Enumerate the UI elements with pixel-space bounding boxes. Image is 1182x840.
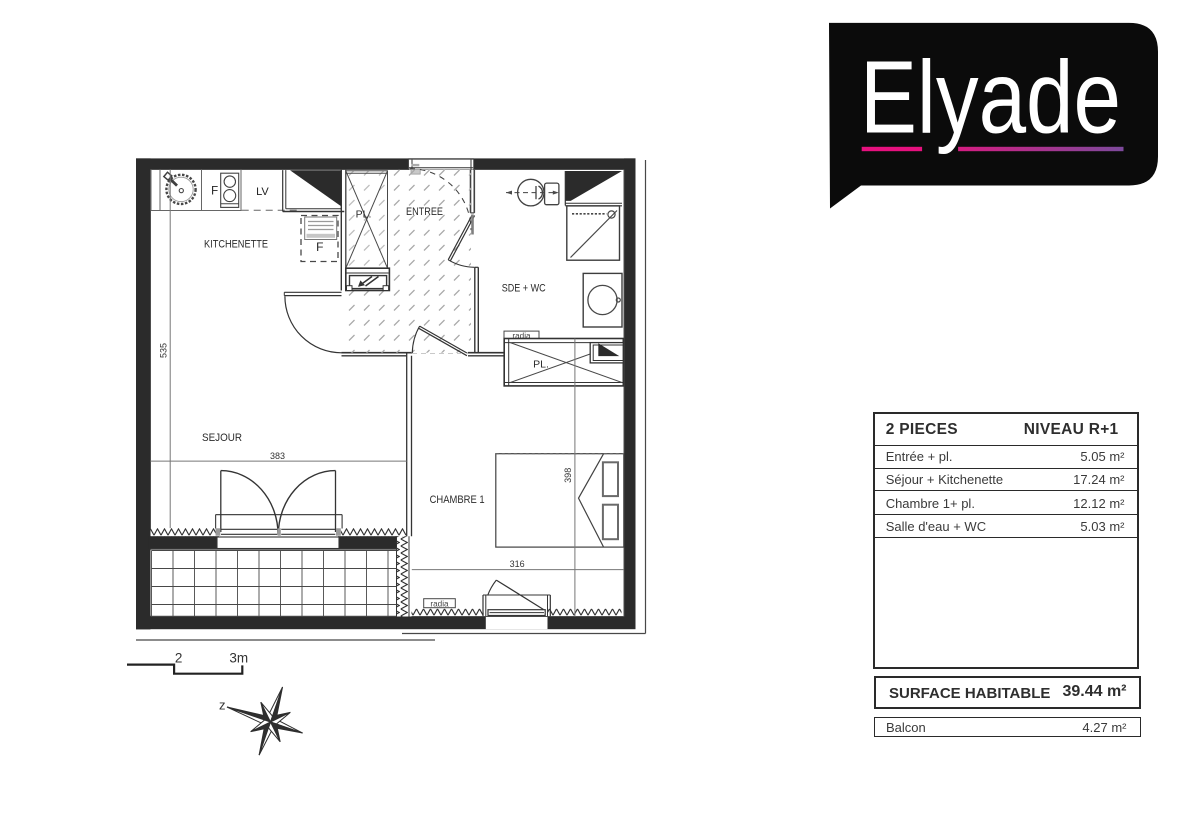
- svg-text:z: z: [219, 697, 226, 712]
- svg-text:535: 535: [159, 343, 169, 358]
- svg-text:3m: 3m: [229, 651, 248, 666]
- svg-text:ENTREE: ENTREE: [406, 206, 443, 218]
- svg-text:398: 398: [563, 468, 573, 483]
- svg-text:Elyade: Elyade: [860, 39, 1121, 154]
- svg-text:SEJOUR: SEJOUR: [202, 432, 242, 444]
- svg-text:KITCHENETTE: KITCHENETTE: [204, 239, 268, 251]
- svg-text:2: 2: [175, 651, 183, 666]
- svg-text:LV: LV: [256, 186, 269, 198]
- svg-text:F: F: [316, 240, 323, 254]
- svg-text:383: 383: [270, 451, 285, 461]
- svg-text:316: 316: [510, 559, 525, 569]
- svg-text:SDE + WC: SDE + WC: [502, 283, 546, 295]
- svg-text:CHAMBRE 1: CHAMBRE 1: [430, 494, 485, 506]
- svg-text:PL.: PL.: [356, 209, 372, 221]
- svg-text:PL.: PL.: [533, 358, 549, 370]
- svg-text:radia: radia: [430, 599, 449, 608]
- svg-text:F: F: [211, 186, 218, 198]
